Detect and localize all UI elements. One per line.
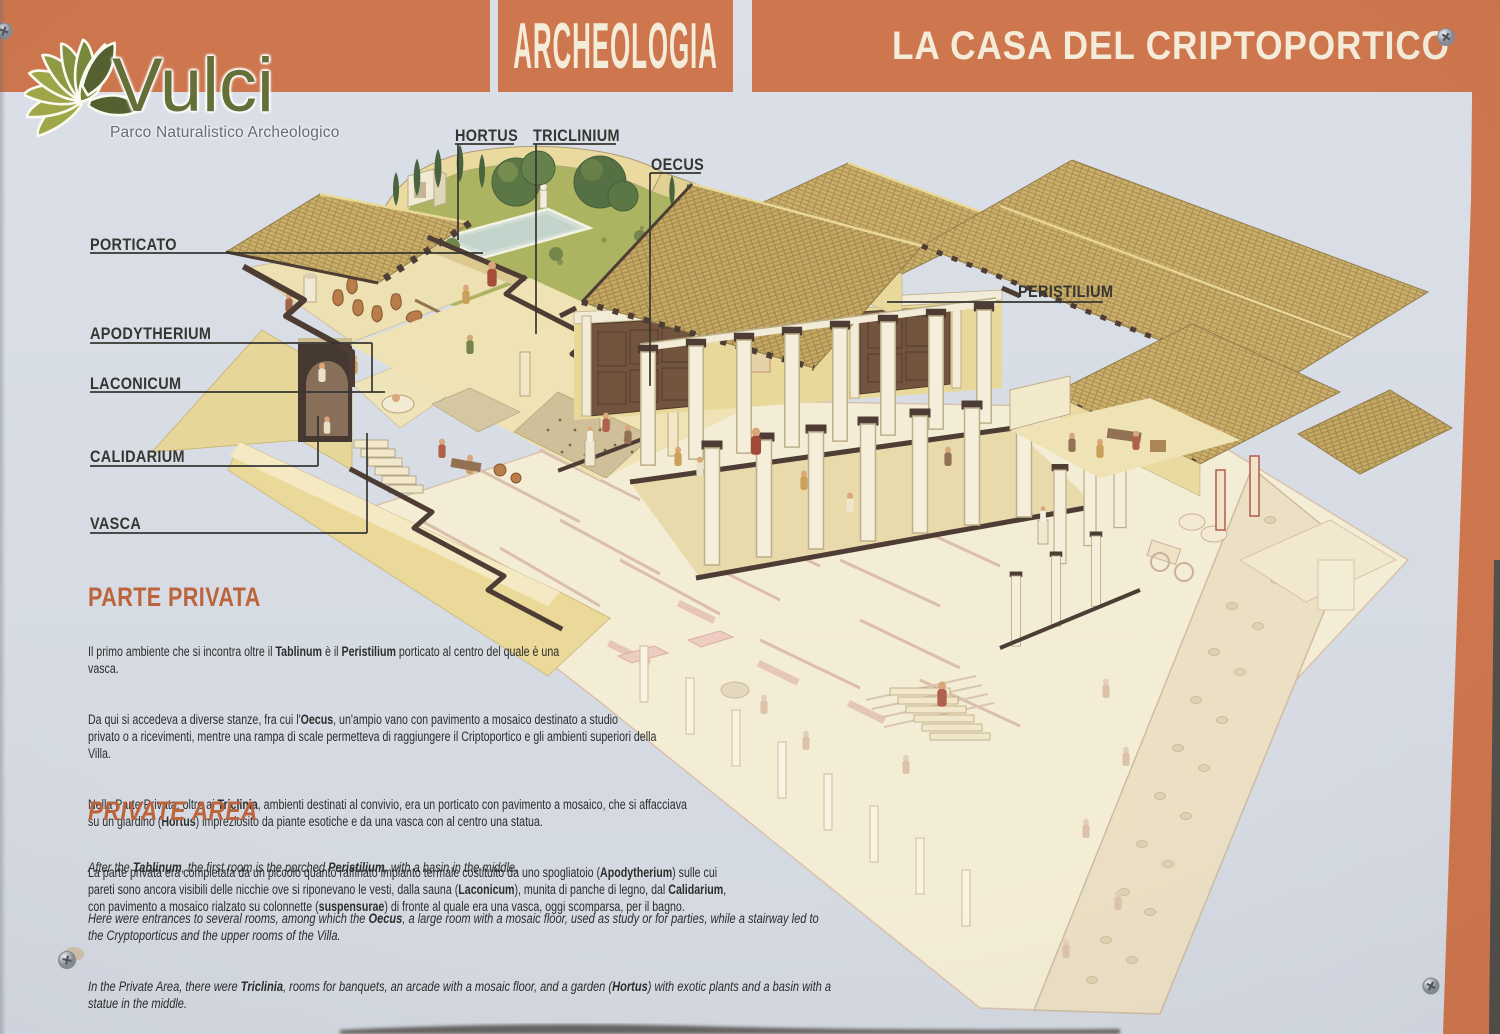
information-panel-photo: ARCHEOLOGIA LA CASA DEL CRIPTOPORTICO	[0, 0, 1500, 1034]
screw	[1423, 978, 1439, 994]
screw	[1438, 29, 1455, 46]
ground-shadow-bottom	[340, 1024, 1120, 1034]
photo-edge-shade	[0, 0, 6, 1034]
panel-frame-and-fixings	[0, 0, 1500, 1034]
screw	[59, 947, 85, 969]
